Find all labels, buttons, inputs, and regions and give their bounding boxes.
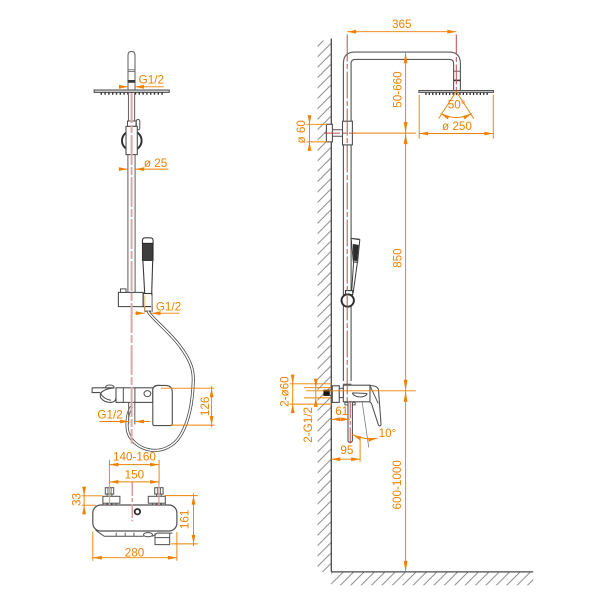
svg-text:G1/2: G1/2: [156, 300, 181, 313]
svg-text:G1/2: G1/2: [97, 408, 122, 421]
svg-text:50-660: 50-660: [391, 71, 404, 108]
svg-text:ø 60: ø 60: [295, 120, 308, 144]
svg-text:365: 365: [392, 18, 412, 31]
svg-text:280: 280: [125, 547, 145, 560]
svg-text:850: 850: [391, 248, 404, 268]
svg-text:150: 150: [125, 468, 145, 481]
svg-text:126: 126: [199, 397, 212, 417]
svg-text:2-ø60: 2-ø60: [278, 376, 291, 407]
svg-text:G1/2: G1/2: [139, 74, 164, 87]
svg-text:ø 25: ø 25: [144, 157, 168, 170]
svg-text:50°: 50°: [448, 99, 466, 112]
svg-text:161: 161: [178, 510, 191, 530]
svg-text:600-1000: 600-1000: [391, 460, 404, 510]
svg-text:33: 33: [70, 493, 83, 506]
svg-text:61: 61: [335, 405, 348, 418]
svg-text:ø 250: ø 250: [442, 120, 472, 133]
svg-text:140-160: 140-160: [113, 451, 156, 464]
svg-text:2-G1/2: 2-G1/2: [302, 407, 315, 443]
svg-text:10°: 10°: [379, 427, 397, 440]
svg-text:95: 95: [340, 444, 354, 457]
